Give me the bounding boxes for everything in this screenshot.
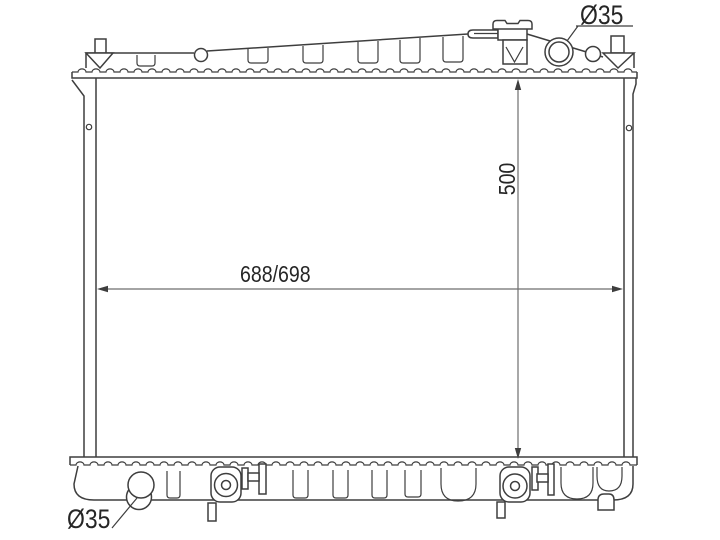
tank-slot [405,470,421,497]
drain-plug [598,494,614,510]
mounting-pin-right [603,36,634,68]
outlet-pipe [127,472,155,510]
top-header-serration [72,69,637,72]
tank-scallop [597,467,622,491]
side-rail-left [72,78,96,457]
rail-hole-right [626,125,631,130]
tank-recess [441,468,476,501]
radiator-technical-drawing: Ø35 Ø35 500 688/698 [0,0,720,540]
tank-slot [293,470,308,498]
cap-top [493,21,532,30]
bracket-tab [208,503,216,521]
tank-slot [372,470,387,498]
leader-outlet [112,498,137,528]
tank-clip [400,38,420,63]
vent-pipe [195,49,208,62]
side-rail-right [624,78,636,457]
cooler-fitting-right [532,464,554,495]
cooler-fitting-left [242,464,266,494]
mounting-bracket-right [497,467,530,518]
top-header [72,69,637,78]
outlet-diameter-label: Ø35 [67,506,110,533]
height-dimension-label: 500 [496,154,518,205]
tank-clip [248,48,268,63]
inlet-diameter-label: Ø35 [580,2,623,29]
cap-body [498,28,527,40]
mounting-bracket-left [208,467,241,521]
tank-clip [137,55,155,66]
width-dimension-label: 688/698 [240,263,311,286]
radiator-diagram-svg [0,0,720,540]
small-port [586,47,601,62]
tank-clip [303,45,323,63]
tank-slot [167,471,180,498]
rail-hole-left [86,124,91,129]
dimension-width [97,286,623,292]
bracket-tab [497,502,505,518]
mounting-pin-left [86,39,113,68]
tank-clip [443,36,463,62]
dimension-height [515,79,521,459]
inlet-pipe [545,38,601,66]
tank-slot [333,470,348,498]
tank-clip [358,41,378,63]
tank-scallop [561,467,593,499]
filler-cap [468,21,532,65]
